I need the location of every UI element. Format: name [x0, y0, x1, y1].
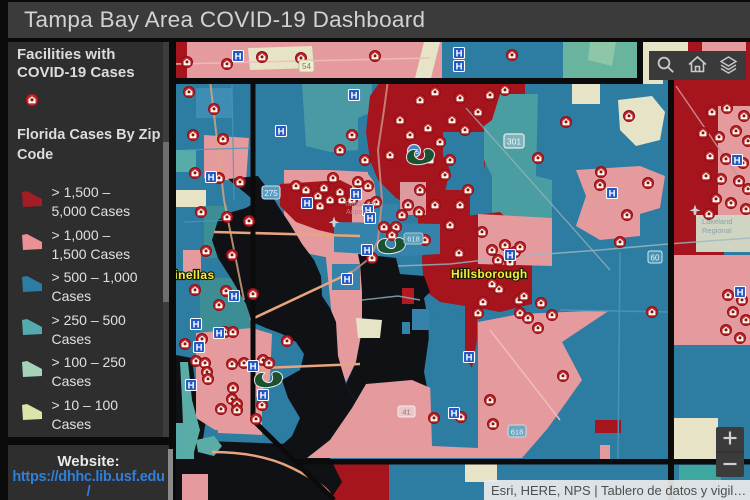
svg-text:Pinellas: Pinellas [176, 268, 215, 282]
svg-text:618: 618 [511, 428, 524, 437]
svg-text:Lakeland: Lakeland [702, 217, 732, 226]
svg-text:41: 41 [402, 408, 410, 417]
svg-text:301: 301 [507, 137, 521, 147]
svg-text:618: 618 [407, 235, 420, 244]
svg-text:Tampa Intl: Tampa Intl [344, 201, 377, 208]
svg-text:54: 54 [302, 62, 311, 71]
svg-text:Hillsborough: Hillsborough [451, 267, 527, 281]
svg-text:Airport: Airport [346, 209, 367, 216]
svg-text:275: 275 [264, 189, 278, 198]
svg-text:60: 60 [651, 254, 660, 263]
svg-text:Esri, HERE, NPS | Tablero de d: Esri, HERE, NPS | Tablero de datos y vig… [491, 483, 746, 498]
svg-text:Regional: Regional [702, 226, 732, 235]
